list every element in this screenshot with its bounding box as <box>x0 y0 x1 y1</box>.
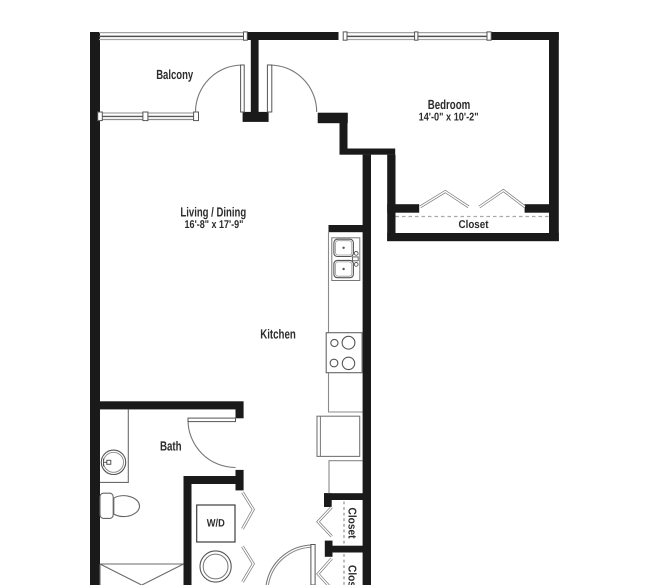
svg-text:Closet: Closet <box>346 565 358 585</box>
svg-text:Kitchen: Kitchen <box>260 326 296 341</box>
svg-text:Living / Dining: Living / Dining <box>180 205 246 220</box>
svg-text:16'-8" x 17'-9": 16'-8" x 17'-9" <box>185 219 244 231</box>
svg-text:14'-0" x 10'-2": 14'-0" x 10'-2" <box>419 112 479 124</box>
svg-text:W/D: W/D <box>207 518 225 530</box>
svg-text:Closet: Closet <box>459 219 489 231</box>
svg-text:Balcony: Balcony <box>156 67 193 82</box>
svg-text:Closet: Closet <box>346 508 358 539</box>
svg-text:Bedroom: Bedroom <box>428 97 471 112</box>
svg-text:Bath: Bath <box>160 438 182 453</box>
